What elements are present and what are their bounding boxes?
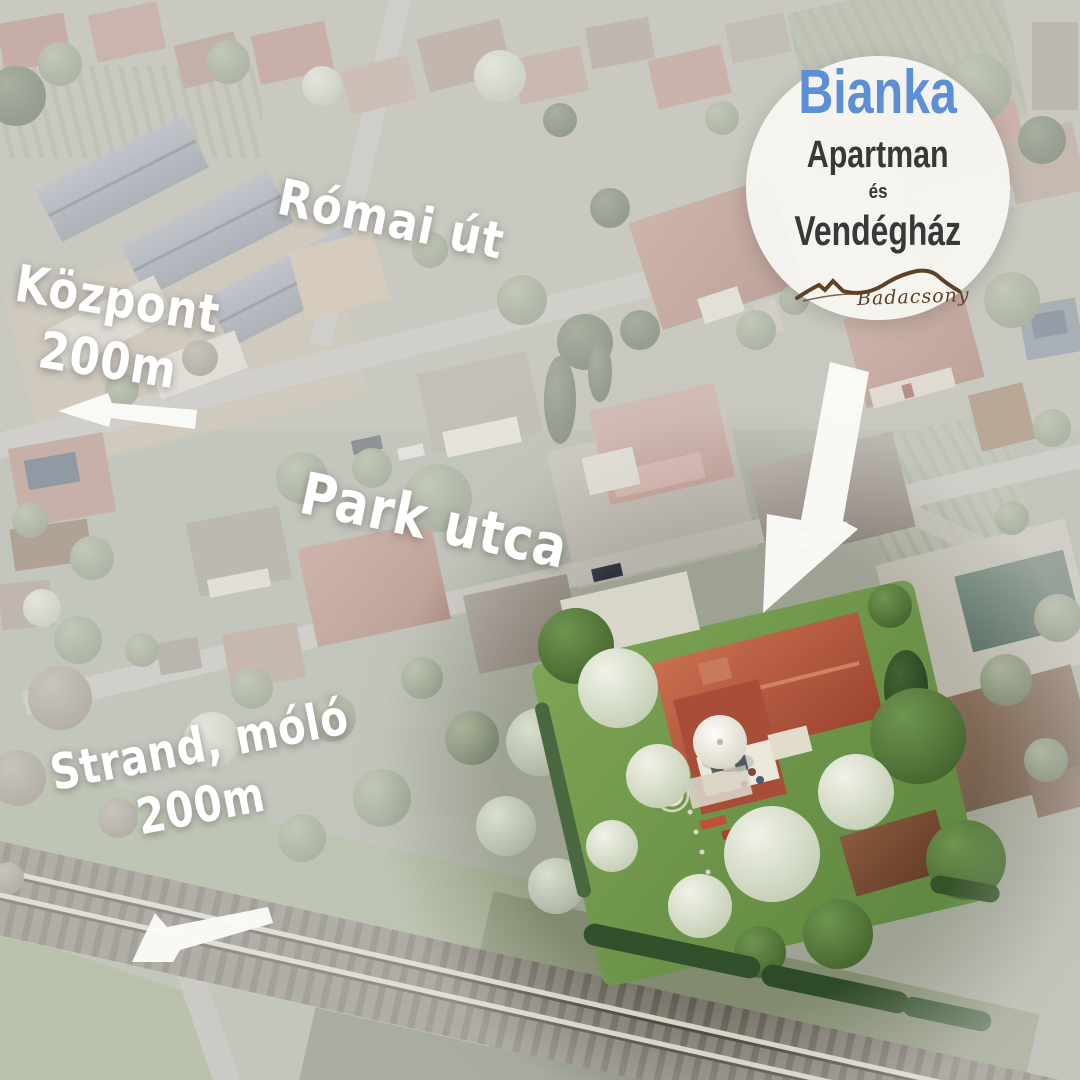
badge-script-badacsony: Badacsony	[857, 284, 970, 310]
badge-line-es: és	[869, 182, 888, 202]
badge-line-vendeghaz: Vendégház	[795, 210, 962, 252]
badacsony-mountain-logo: Badacsony	[783, 258, 973, 316]
badge-line-apartman: Apartman	[807, 136, 949, 174]
badge-title: Bianka	[799, 62, 958, 124]
annotated-aerial-photo: Római út Központ 200m Park utca Strand, …	[0, 0, 1080, 1080]
brand-badge: Bianka Apartman és Vendégház Badacsony	[746, 56, 1010, 320]
